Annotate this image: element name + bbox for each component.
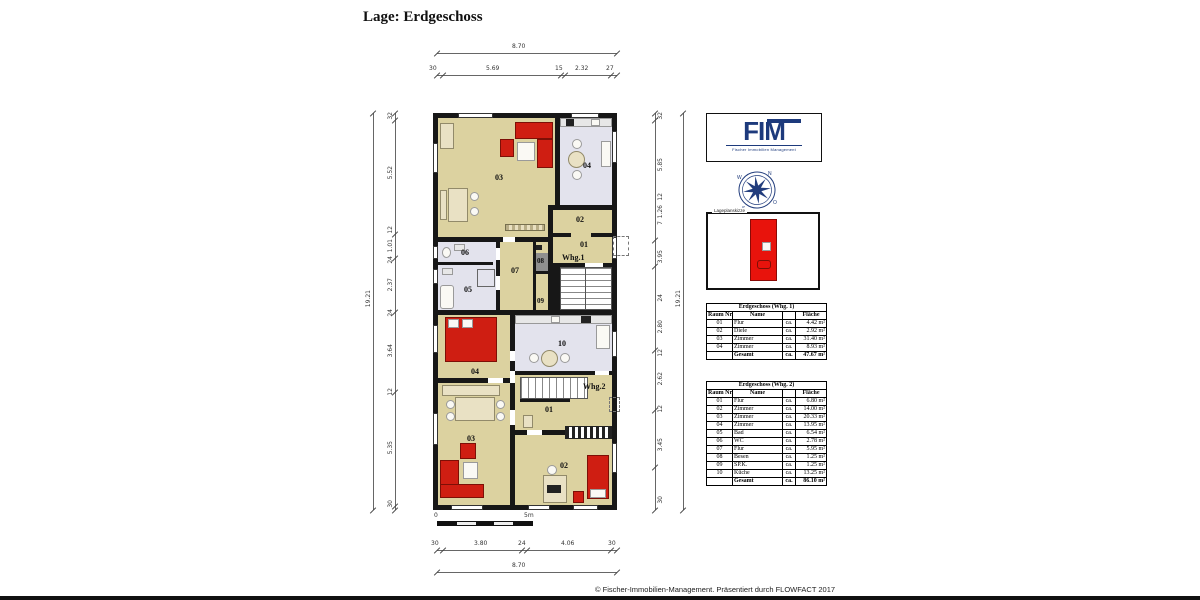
table-row: 07 Flur ca. 5.95 m² <box>707 446 827 454</box>
coffee-table-icon <box>517 142 535 161</box>
wall <box>503 378 510 383</box>
dimension-line <box>373 113 374 510</box>
footer-bar <box>0 596 1200 600</box>
scale-label-five: 5m <box>524 512 534 519</box>
table-row: 04 Zimmer ca. 8.93 m² <box>707 344 827 352</box>
window <box>433 246 438 259</box>
table-row: 03 Zimmer ca. 31.40 m² <box>707 336 827 344</box>
table-title: Erdgeschoss (Whg. 2) <box>707 382 827 390</box>
window <box>433 269 438 284</box>
table-row: 04 Zimmer ca. 13.95 m² <box>707 422 827 430</box>
dimension-label: 5.35 <box>387 441 394 454</box>
dimension-label: 3.80 <box>474 540 487 547</box>
pillow-icon <box>590 489 606 498</box>
dimension-label: 5.69 <box>486 65 499 72</box>
wardrobe-icon <box>565 426 612 439</box>
wall <box>510 383 515 410</box>
area-table-whg2: Erdgeschoss (Whg. 2) Raum Nr. Name Fläch… <box>706 381 827 486</box>
table-row: 03 Zimmer ca. 20.33 m² <box>707 414 827 422</box>
page-title: Lage: Erdgeschoss <box>363 9 483 26</box>
room-label: 03 <box>467 434 475 443</box>
fim-logo-subtitle: Fischer Immobilien Management <box>726 145 802 152</box>
sideboard-icon <box>440 123 454 149</box>
dimension-label: 5.85 <box>657 158 664 171</box>
window <box>528 505 550 510</box>
dimension-label: 1.26 <box>657 205 664 218</box>
svg-text:O: O <box>773 200 777 206</box>
staircase-whg2 <box>520 377 588 399</box>
wall <box>548 205 612 210</box>
dimension-line <box>437 572 617 573</box>
dimension-label: 32 <box>657 112 664 120</box>
wall <box>555 118 560 205</box>
kitchen-counter-icon <box>515 315 612 324</box>
table-row: 10 Küche ca. 13.25 m² <box>707 470 827 478</box>
dimension-label: 1.01 <box>387 239 394 252</box>
rug-icon <box>573 491 584 503</box>
svg-text:N: N <box>768 171 772 177</box>
dimension-label: 30 <box>657 496 664 504</box>
room-label: 10 <box>558 339 566 348</box>
wall <box>548 263 560 310</box>
compass-icon: N O S W <box>736 168 778 212</box>
unit-label-whg1: Whg.1 <box>562 253 584 262</box>
table-row: 02 Diele ca. 2.92 m² <box>707 328 827 336</box>
floor-plan-page: Lage: Erdgeschoss <box>0 0 1200 600</box>
room-fill-whg1-flur07 <box>500 242 535 310</box>
chair-icon <box>572 139 582 149</box>
wall <box>496 260 500 276</box>
wall <box>438 237 503 242</box>
window <box>612 131 617 163</box>
dimension-line <box>437 75 617 76</box>
dimension-line <box>437 53 617 54</box>
chair-icon <box>547 465 557 475</box>
round-table-icon <box>541 350 558 367</box>
room-label: 08 <box>537 257 544 265</box>
wall <box>515 430 527 435</box>
table-title: Erdgeschoss (Whg. 1) <box>707 304 827 312</box>
dimension-label: 5.52 <box>387 166 394 179</box>
table-row: 08 Besen ca. 1.25 m² <box>707 454 827 462</box>
entrance-landing <box>613 236 629 256</box>
table-total-row: Gesamt ca. 47.67 m² <box>707 352 827 360</box>
wall <box>515 237 548 242</box>
pillow-icon <box>462 319 473 328</box>
stair-rail <box>585 267 586 310</box>
sink-icon <box>442 268 453 275</box>
unit-label-whg2: Whg.2 <box>583 382 605 391</box>
dimension-label: 8.70 <box>512 43 525 50</box>
table-header-row: Raum Nr. Name Fläche <box>707 390 827 398</box>
dimension-label: 27 <box>606 65 614 72</box>
bathtub-icon <box>440 285 454 309</box>
table-row: 06 WC ca. 2.78 m² <box>707 438 827 446</box>
room-label: 02 <box>576 215 584 224</box>
dimension-label: 3.95 <box>657 250 664 263</box>
window <box>573 505 598 510</box>
scale-label-zero: 0 <box>434 512 438 519</box>
chair-icon <box>560 353 570 363</box>
wall <box>515 371 595 375</box>
stove-icon <box>566 119 574 126</box>
dimension-label: 4.06 <box>561 540 574 547</box>
armchair-icon <box>460 443 476 459</box>
heater-icon <box>505 224 545 231</box>
dimension-label: 30 <box>608 540 616 547</box>
dining-table-icon <box>455 397 495 421</box>
wall <box>510 425 515 505</box>
table-header-row: Raum Nr. Name Fläche <box>707 312 827 320</box>
wall <box>536 271 548 274</box>
fridge-icon <box>596 325 610 349</box>
room-label: 01 <box>580 240 588 249</box>
wall <box>603 263 612 267</box>
dimension-label: 12 <box>657 349 664 357</box>
wall <box>438 378 488 383</box>
table-row: 09 SP.K. ca. 1.25 m² <box>707 462 827 470</box>
wall <box>591 233 612 237</box>
stove-icon <box>581 316 591 323</box>
wall <box>496 290 500 310</box>
dimension-label: 24 <box>657 294 664 302</box>
wall <box>510 361 515 371</box>
sink-icon <box>591 119 600 126</box>
coffee-table-icon <box>463 462 478 479</box>
wall <box>496 242 500 248</box>
dimension-label: 2.37 <box>387 278 394 291</box>
window <box>433 413 438 445</box>
keyboard-icon <box>547 485 561 493</box>
room-label: 06 <box>461 248 469 257</box>
dimension-label: 19.21 <box>675 290 682 307</box>
window <box>433 325 438 353</box>
chair-icon <box>572 170 582 180</box>
table-row: 01 Flur ca. 6.80 m² <box>707 398 827 406</box>
fridge-icon <box>601 141 611 167</box>
dimension-line <box>683 113 684 510</box>
chair-icon <box>470 192 479 201</box>
wall <box>520 399 570 402</box>
site-plan-label: Lageplanskizze <box>712 208 747 213</box>
room-label: 04 <box>471 367 479 376</box>
shelf-icon <box>523 415 533 428</box>
room-label: 04 <box>583 161 591 170</box>
sofa-icon <box>440 484 484 498</box>
sideboard-icon <box>442 385 500 396</box>
chair-icon <box>496 412 505 421</box>
dimension-label: 3.64 <box>387 344 394 357</box>
wall <box>553 233 571 237</box>
table-row: 05 Bad ca. 6.54 m² <box>707 430 827 438</box>
scale-bar <box>437 521 533 526</box>
dimension-label: 30 <box>429 65 437 72</box>
toilet-icon <box>442 247 451 258</box>
sink-icon <box>551 316 560 323</box>
dimension-label: 3.45 <box>657 438 664 451</box>
sofa-icon <box>537 139 553 168</box>
pillow-icon <box>448 319 459 328</box>
dimension-label: 2.62 <box>657 372 664 385</box>
dimension-line <box>655 113 656 510</box>
site-plan-marker <box>757 260 771 269</box>
chair-icon <box>446 400 455 409</box>
window <box>458 113 493 118</box>
chair-icon <box>446 412 455 421</box>
footer-text: © Fischer-Immobilien-Management. Präsent… <box>595 585 835 594</box>
wall <box>609 371 612 375</box>
window <box>612 443 617 473</box>
room-label: 09 <box>537 297 544 305</box>
chair-icon <box>496 400 505 409</box>
staircase-whg1 <box>560 267 612 310</box>
table-row: 02 Zimmer ca. 14.00 m² <box>707 406 827 414</box>
room-label: 07 <box>511 266 519 275</box>
window <box>612 331 617 357</box>
window <box>433 143 438 173</box>
room-label: 03 <box>495 173 503 182</box>
bench-icon <box>440 190 447 220</box>
entrance-landing <box>609 397 620 412</box>
dimension-label: 30 <box>431 540 439 547</box>
table-total-row: Gesamt ca. 86.10 m² <box>707 478 827 486</box>
area-table-whg1: Erdgeschoss (Whg. 1) Raum Nr. Name Fläch… <box>706 303 827 360</box>
window <box>451 505 483 510</box>
site-plan-detail <box>762 242 771 251</box>
dimension-label: 12 <box>657 405 664 413</box>
dimension-label: 8.70 <box>512 562 525 569</box>
armchair-icon <box>500 139 514 157</box>
chair-icon <box>470 207 479 216</box>
dimension-label: 19.21 <box>365 290 372 307</box>
floor-plan: 03 04 02 01 Whg.1 06 05 07 08 09 04 10 W… <box>433 113 617 510</box>
shower-icon <box>477 269 495 287</box>
wall <box>533 242 536 310</box>
chair-icon <box>529 353 539 363</box>
room-label: 01 <box>545 405 553 414</box>
dimension-label: 15 <box>555 65 563 72</box>
shelf-icon <box>536 245 542 250</box>
dimension-label: 12 <box>657 193 664 201</box>
svg-text:W: W <box>737 175 742 181</box>
fim-logo: FIM Fischer Immobilien Management <box>706 113 822 162</box>
dimension-label: 24 <box>518 540 526 547</box>
dimension-label: 2.80 <box>657 320 664 333</box>
fim-logo-bar <box>767 119 801 123</box>
dimension-label: 7 <box>657 221 664 225</box>
room-label: 05 <box>464 285 472 294</box>
table-row: 01 Flur ca. 4.42 m² <box>707 320 827 328</box>
sofa-icon <box>515 122 553 139</box>
dimension-label: 12 <box>387 226 394 234</box>
dining-table-icon <box>448 188 468 222</box>
dimension-label: 2.32 <box>575 65 588 72</box>
wall <box>438 262 493 265</box>
room-label: 02 <box>560 461 568 470</box>
